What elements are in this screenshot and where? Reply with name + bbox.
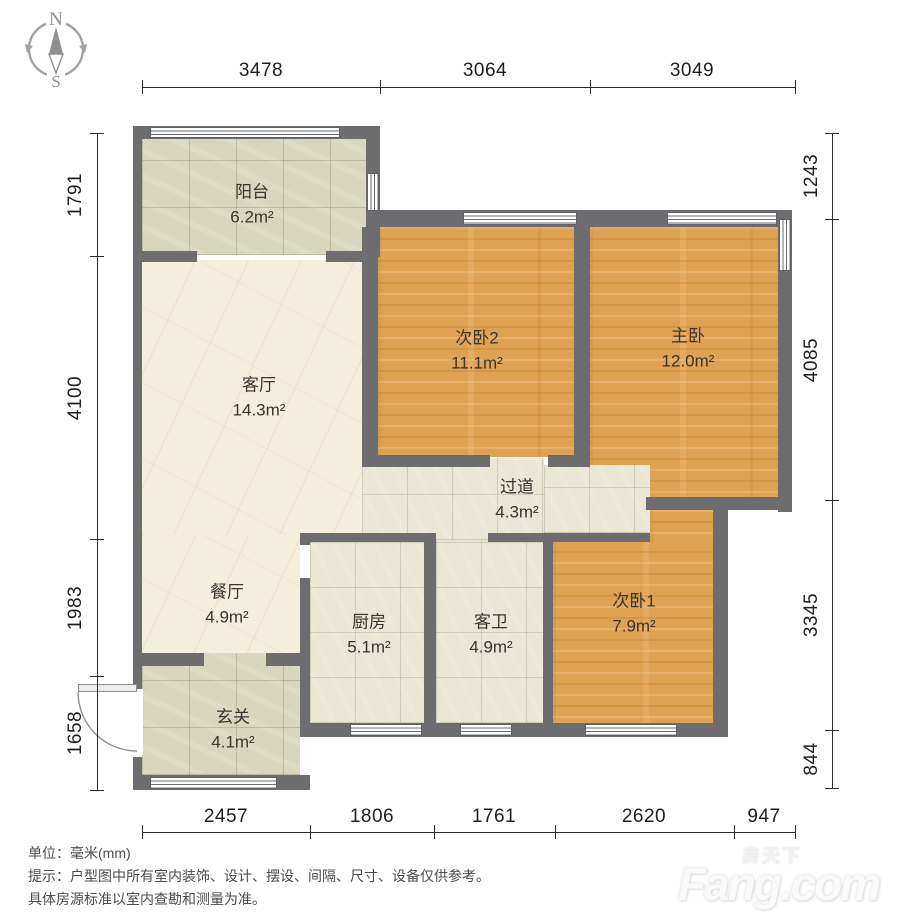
dim-label-bottom: 2457 — [204, 806, 248, 828]
dim-tick — [795, 80, 796, 94]
dim-tick — [734, 825, 735, 839]
dim-tick — [142, 825, 143, 839]
dim-label-right: 1243 — [801, 154, 823, 198]
fang-logo-cn: 房天下 — [742, 842, 802, 868]
dimension-line-top — [142, 87, 795, 88]
dim-label-left: 1983 — [65, 586, 87, 630]
disclaimer-line2: 具体房源标准以室内查勘和测量为准。 — [28, 889, 266, 909]
wall — [142, 653, 204, 666]
wall — [300, 578, 310, 723]
fang-logo: Fang.com 房天下 — [678, 849, 888, 913]
dim-label-left: 1658 — [65, 711, 87, 755]
dim-tick — [90, 539, 104, 540]
wall — [142, 251, 197, 262]
wall — [553, 533, 650, 542]
disclaimer-line1: 提示：户型图中所有室内装饰、设计、摆设、间隔、尺寸、设备仅供参考。 — [28, 866, 490, 886]
wall — [543, 533, 553, 723]
dim-tick — [825, 788, 839, 789]
wall — [362, 227, 378, 467]
room-label-bathroom: 客卫4.9m² — [469, 610, 512, 659]
unit-note: 单位：毫米(mm) — [28, 843, 131, 863]
dim-label-bottom: 947 — [747, 806, 780, 828]
dim-label-bottom: 1761 — [472, 806, 516, 828]
compass-icon: N S — [8, 2, 104, 98]
wall — [362, 455, 490, 467]
window — [150, 127, 340, 138]
dim-label-top: 3064 — [463, 60, 507, 82]
dim-tick — [434, 825, 435, 839]
dim-label-left: 4100 — [65, 376, 87, 420]
dim-label-right: 4085 — [801, 338, 823, 382]
window — [460, 724, 512, 736]
room-label-balcony: 阳台6.2m² — [230, 180, 273, 229]
room-label-living-room: 客厅14.3m² — [233, 373, 286, 422]
dimension-line-right — [832, 133, 833, 788]
dim-tick — [142, 80, 143, 94]
dim-tick — [90, 676, 104, 677]
window — [150, 777, 277, 789]
dim-label-right: 3345 — [801, 593, 823, 637]
dim-tick — [310, 825, 311, 839]
window — [667, 212, 777, 225]
wall — [713, 503, 728, 737]
dim-tick — [90, 256, 104, 257]
compass-north-label: N — [49, 9, 63, 30]
dim-tick — [90, 133, 104, 134]
window — [585, 724, 677, 736]
room-label-bedroom2: 次卧211.1m² — [451, 326, 503, 375]
dim-label-top: 3049 — [670, 60, 714, 82]
floor-bedroom1-ext — [650, 510, 713, 543]
window — [367, 173, 379, 211]
room-label-master-bedroom: 主卧12.0m² — [662, 324, 715, 373]
room-label-hallway: 过道4.3m² — [495, 475, 538, 524]
room-label-kitchen: 厨房5.1m² — [347, 610, 390, 659]
wall — [574, 210, 590, 467]
dim-tick — [825, 133, 839, 134]
dim-label-bottom: 2620 — [622, 806, 666, 828]
wall — [548, 455, 590, 467]
wall — [133, 126, 142, 690]
wall — [424, 533, 436, 723]
dimension-line-bottom — [142, 832, 795, 833]
dim-tick — [795, 825, 796, 839]
dim-label-left: 1791 — [65, 173, 87, 217]
wall — [300, 533, 433, 542]
dim-label-top: 3478 — [239, 60, 283, 82]
room-label-bedroom1: 次卧17.9m² — [612, 589, 655, 638]
dim-label-right: 844 — [801, 742, 823, 775]
dim-tick — [825, 219, 839, 220]
floor-hallway-ext — [544, 465, 650, 533]
dim-label-bottom: 1806 — [350, 806, 394, 828]
window — [463, 212, 577, 225]
dim-tick — [590, 80, 591, 94]
dimension-line-left — [97, 133, 98, 790]
window — [350, 724, 422, 736]
dim-tick — [825, 500, 839, 501]
dim-tick — [380, 80, 381, 94]
room-label-entry: 玄关4.1m² — [211, 705, 254, 754]
window — [779, 219, 791, 271]
room-label-dining-room: 餐厅4.9m² — [205, 580, 248, 629]
dim-tick — [90, 790, 104, 791]
dim-tick — [825, 730, 839, 731]
floorplan-page: N S — [0, 0, 900, 919]
dim-tick — [555, 825, 556, 839]
wall — [266, 653, 310, 666]
